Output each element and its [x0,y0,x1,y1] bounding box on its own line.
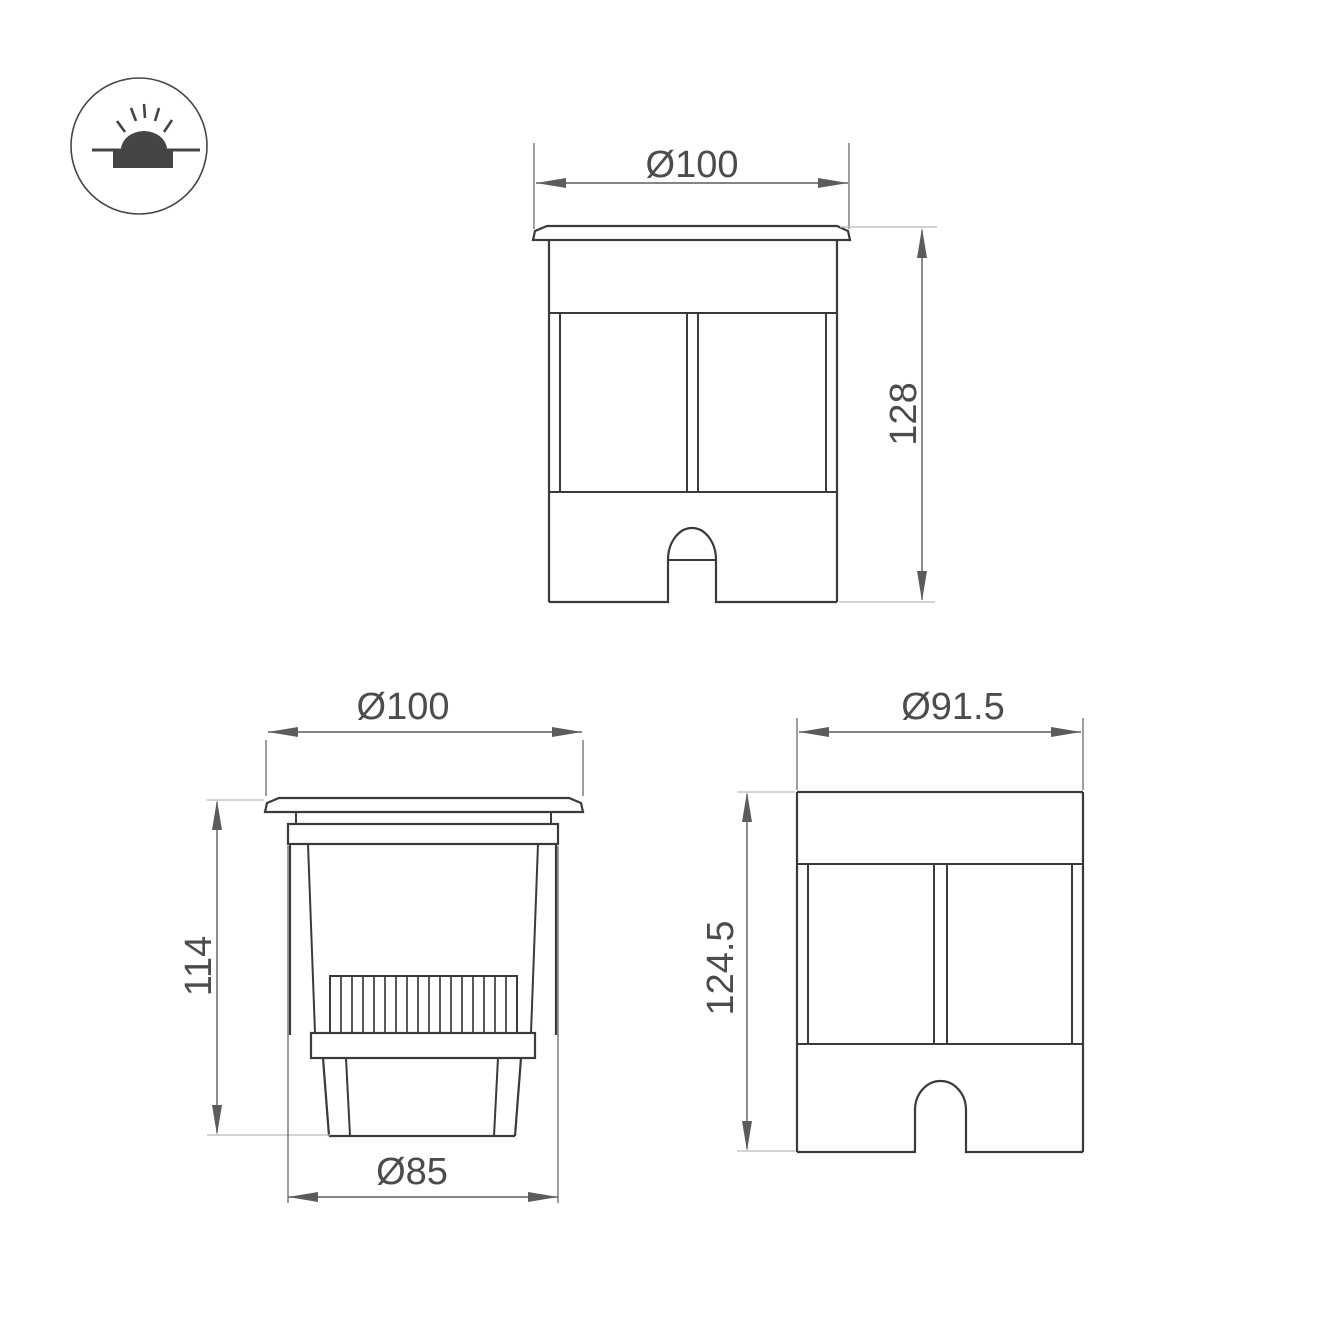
section-view: Ø100 [178,686,583,1203]
section-clamp-band [288,824,558,844]
housing-view: Ø91.5 124.5 [700,686,1083,1152]
front-height-label: 128 [883,382,925,445]
section-led-plate [311,1033,535,1058]
housing-dim-height: 124.5 [700,792,795,1151]
section-flange-outline [265,798,583,812]
housing-body-outline [797,792,1083,1152]
section-height-label: 114 [178,936,220,997]
drawing-canvas: Ø100 128 Ø100 [0,0,1331,1331]
front-diameter-label: Ø100 [646,144,739,186]
housing-height-label: 124.5 [700,920,742,1015]
section-dim-height: 114 [178,800,330,1135]
front-flange-outline [533,226,850,240]
technical-drawing: Ø100 128 Ø100 [0,0,1331,1331]
section-base-diameter-label: Ø85 [376,1151,448,1193]
front-dim-diameter: Ø100 [534,143,849,229]
front-dim-height: 128 [839,227,937,602]
front-glass-dividers [560,313,826,492]
section-diameter-label: Ø100 [357,686,450,728]
icon-body [113,150,173,168]
front-view: Ø100 128 [533,143,937,602]
housing-dim-diameter: Ø91.5 [797,686,1083,790]
front-base-bottom [549,560,837,602]
section-dim-diameter: Ø100 [266,686,583,796]
housing-cable-arch [915,1081,966,1110]
housing-glass-dividers [808,864,1072,1044]
housing-diameter-label: Ø91.5 [901,686,1005,728]
section-reflector-left [308,844,315,1033]
icon-dome [121,131,167,150]
front-cable-arch [668,528,716,560]
section-reflector-right [531,844,538,1033]
section-rear-housing [323,1058,521,1136]
recessed-ground-light-icon [71,78,207,214]
heatsink-fins [330,976,517,1033]
icon-light-rays [117,104,172,132]
